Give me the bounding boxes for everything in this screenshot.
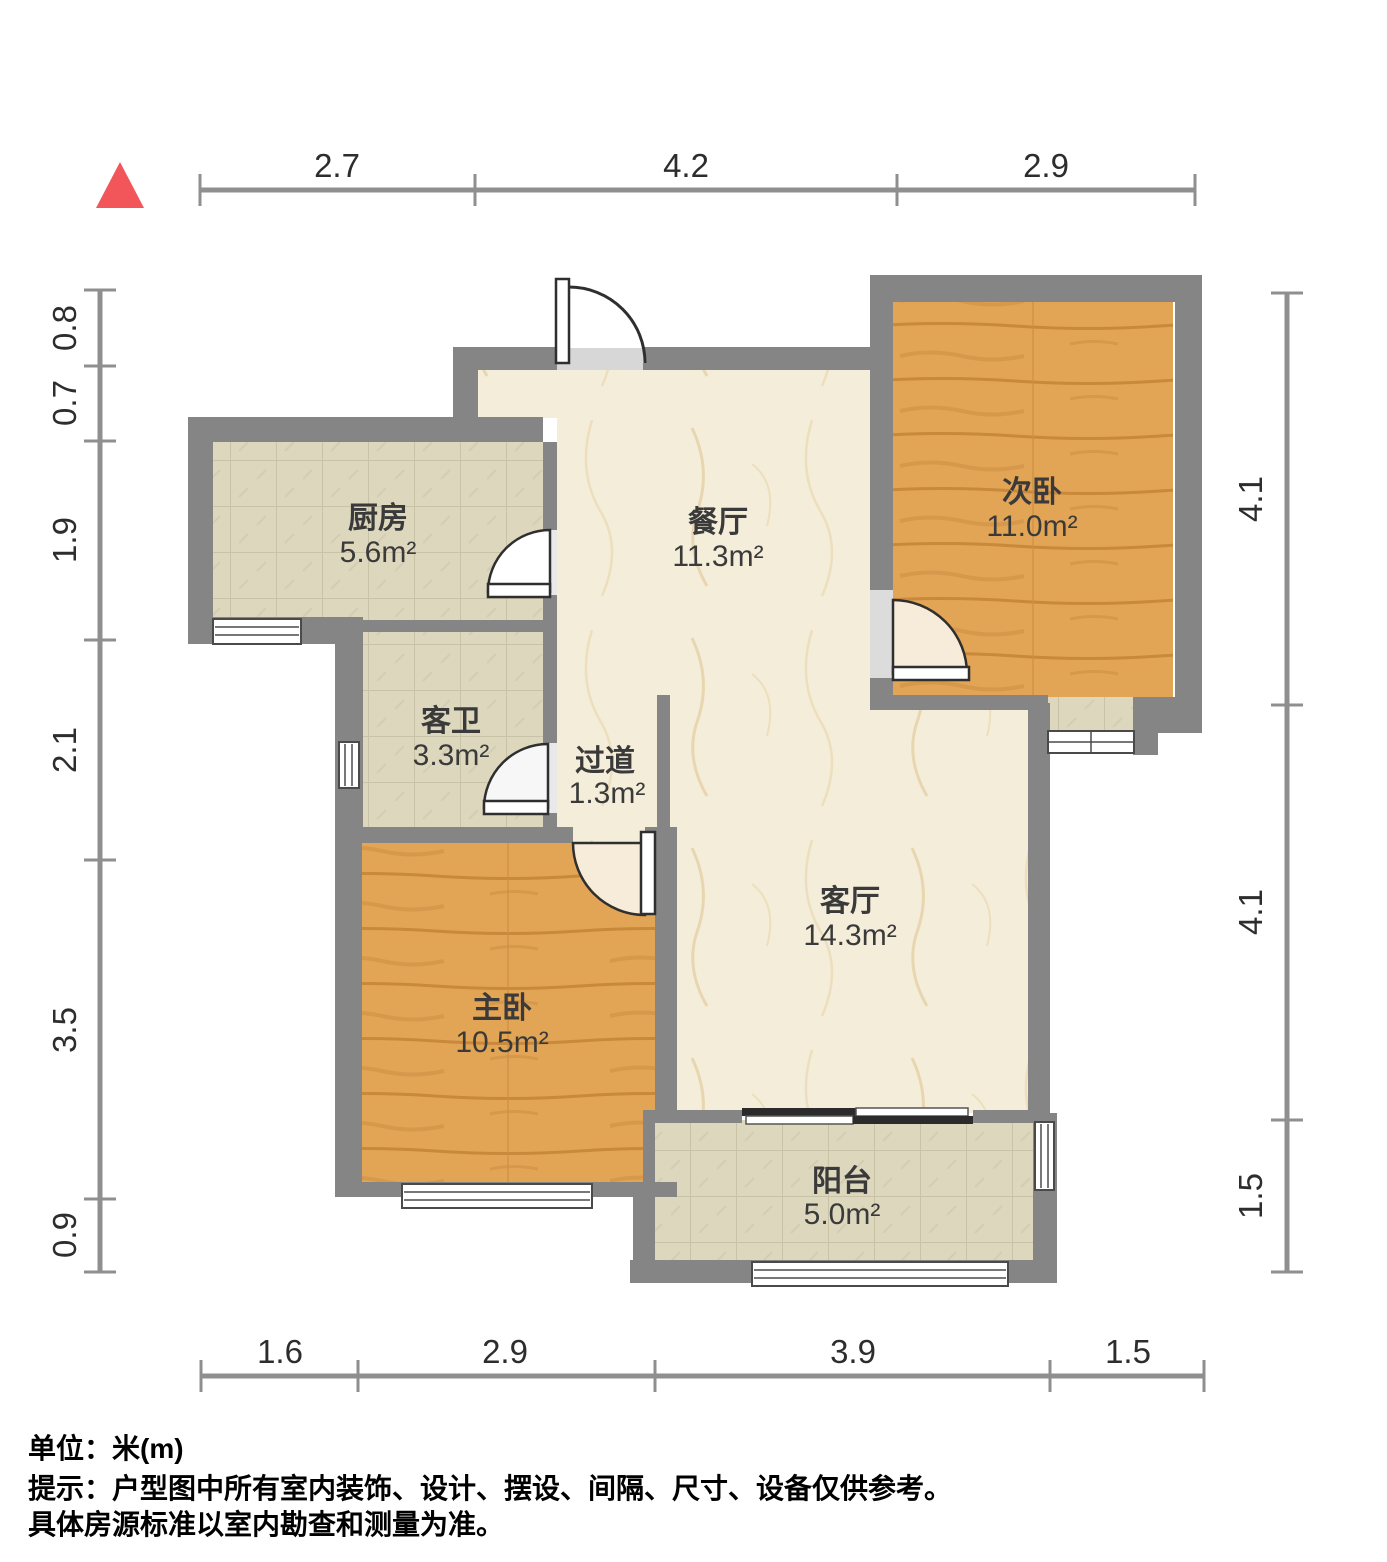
entry-door-leaf (556, 279, 569, 363)
footer-notes: 单位：米(m) 提示：户型图中所有室内装饰、设计、摆设、间隔、尺寸、设备仅供参考… (28, 1432, 952, 1540)
bath-area: 3.3m² (413, 739, 490, 772)
dim-bottom-2: 2.9 (482, 1333, 528, 1370)
dim-left-5: 3.5 (46, 1007, 83, 1053)
dim-left-1: 0.8 (46, 305, 83, 351)
kitchen-window (213, 619, 301, 644)
balcony-right-window (1035, 1122, 1054, 1190)
sliding-panel-2 (856, 1108, 968, 1116)
footer-unit: 单位：米(m) (28, 1432, 184, 1464)
kitchen-door-leaf (488, 584, 550, 597)
footer-tip: 提示：户型图中所有室内装饰、设计、摆设、间隔、尺寸、设备仅供参考。 (28, 1472, 952, 1504)
sliding-panel-1 (746, 1116, 853, 1124)
wall-living-right (1028, 703, 1050, 1113)
wall-hallway-right (657, 695, 670, 830)
sliding-panel-2-rail (853, 1116, 973, 1124)
floorplan-page: 厨房 5.6m² 餐厅 11.3m² 次卧 11.0m² 客卫 3.3m² 过道… (0, 0, 1387, 1562)
dim-bottom-4: 1.5 (1105, 1333, 1151, 1370)
dining-area: 11.3m² (672, 540, 763, 573)
bedroom2-area: 11.0m² (986, 510, 1077, 543)
balcony-bottom-window (752, 1262, 1008, 1286)
dim-right-1: 4.1 (1232, 476, 1269, 522)
wall-living-balcony-left (677, 1110, 742, 1123)
footer-tip2: 具体房源标准以室内勘查和测量为准。 (28, 1508, 504, 1540)
living-label: 客厅 (820, 884, 880, 918)
wall-bath-right-upper (543, 644, 557, 743)
hallway-label: 过道 (575, 745, 635, 778)
wall-bath-bottom (335, 827, 573, 843)
dim-top-1: 2.7 (314, 147, 360, 184)
dim-bottom-3: 3.9 (830, 1333, 876, 1370)
dim-top-2: 4.2 (663, 147, 709, 184)
wall-master-balcony-step (643, 1110, 677, 1123)
master-door-leaf (641, 832, 655, 914)
sliding-panel-1-rail (742, 1108, 860, 1116)
floorplan-canvas: 厨房 5.6m² 餐厅 11.3m² 次卧 11.0m² 客卫 3.3m² 过道… (0, 0, 1387, 1562)
dim-left-3: 1.9 (46, 517, 83, 563)
wall-kitchen-right-lower (543, 595, 557, 644)
balcony-label: 阳台 (812, 1164, 872, 1198)
dim-left-4: 2.1 (46, 727, 83, 773)
balcony-area: 5.0m² (804, 1198, 881, 1231)
bedroom2-door-leaf (893, 667, 969, 680)
bath-window (339, 742, 359, 788)
living-area: 14.3m² (803, 919, 896, 952)
wall-kitchen-left (188, 417, 213, 644)
bedroom2-label: 次卧 (1002, 476, 1062, 509)
kitchen-label: 厨房 (348, 502, 408, 535)
balcony-sliding-door (742, 1108, 973, 1124)
wall-entry-left (453, 347, 557, 370)
wall-bedroom2-bottom-right (1133, 697, 1202, 733)
kitchen-area: 5.6m² (340, 536, 417, 569)
dining-label: 餐厅 (688, 506, 748, 539)
wall-bath-top (363, 620, 543, 632)
hallway-area: 1.3m² (569, 777, 646, 810)
wall-right-step (1133, 733, 1158, 755)
utility-window (1048, 731, 1134, 753)
wall-entry-right (643, 347, 893, 370)
master-window (402, 1184, 592, 1208)
dining-floor-upper (478, 370, 870, 418)
dim-right-3: 1.5 (1232, 1173, 1269, 1219)
wall-bedroom2-left-lower (870, 678, 893, 697)
wall-living-top (870, 695, 1048, 710)
dim-left-2: 0.7 (46, 380, 83, 426)
wall-bath-left (335, 617, 363, 843)
wall-bedroom2-left-upper (870, 275, 893, 590)
bath-label: 客卫 (421, 704, 481, 738)
wall-kitchen-right-upper (543, 442, 557, 530)
north-marker-icon (96, 162, 144, 208)
wall-kitchen-top (188, 417, 543, 442)
dim-bottom-1: 1.6 (257, 1333, 303, 1370)
bedroom2-doorway (870, 590, 893, 678)
dim-left-6: 0.9 (46, 1212, 83, 1258)
dim-top-3: 2.9 (1023, 147, 1069, 184)
master-area: 10.5m² (455, 1026, 548, 1059)
wall-bedroom2-right (1175, 275, 1202, 722)
master-label: 主卧 (472, 992, 532, 1025)
wall-master-left (335, 843, 362, 1197)
dim-right-2: 4.1 (1232, 889, 1269, 935)
entry-threshold-overlay (570, 348, 643, 369)
utility-floor (1048, 697, 1133, 733)
bath-door-leaf (484, 801, 548, 814)
wall-master-right (655, 832, 677, 1123)
wall-bedroom2-top (870, 275, 1197, 302)
